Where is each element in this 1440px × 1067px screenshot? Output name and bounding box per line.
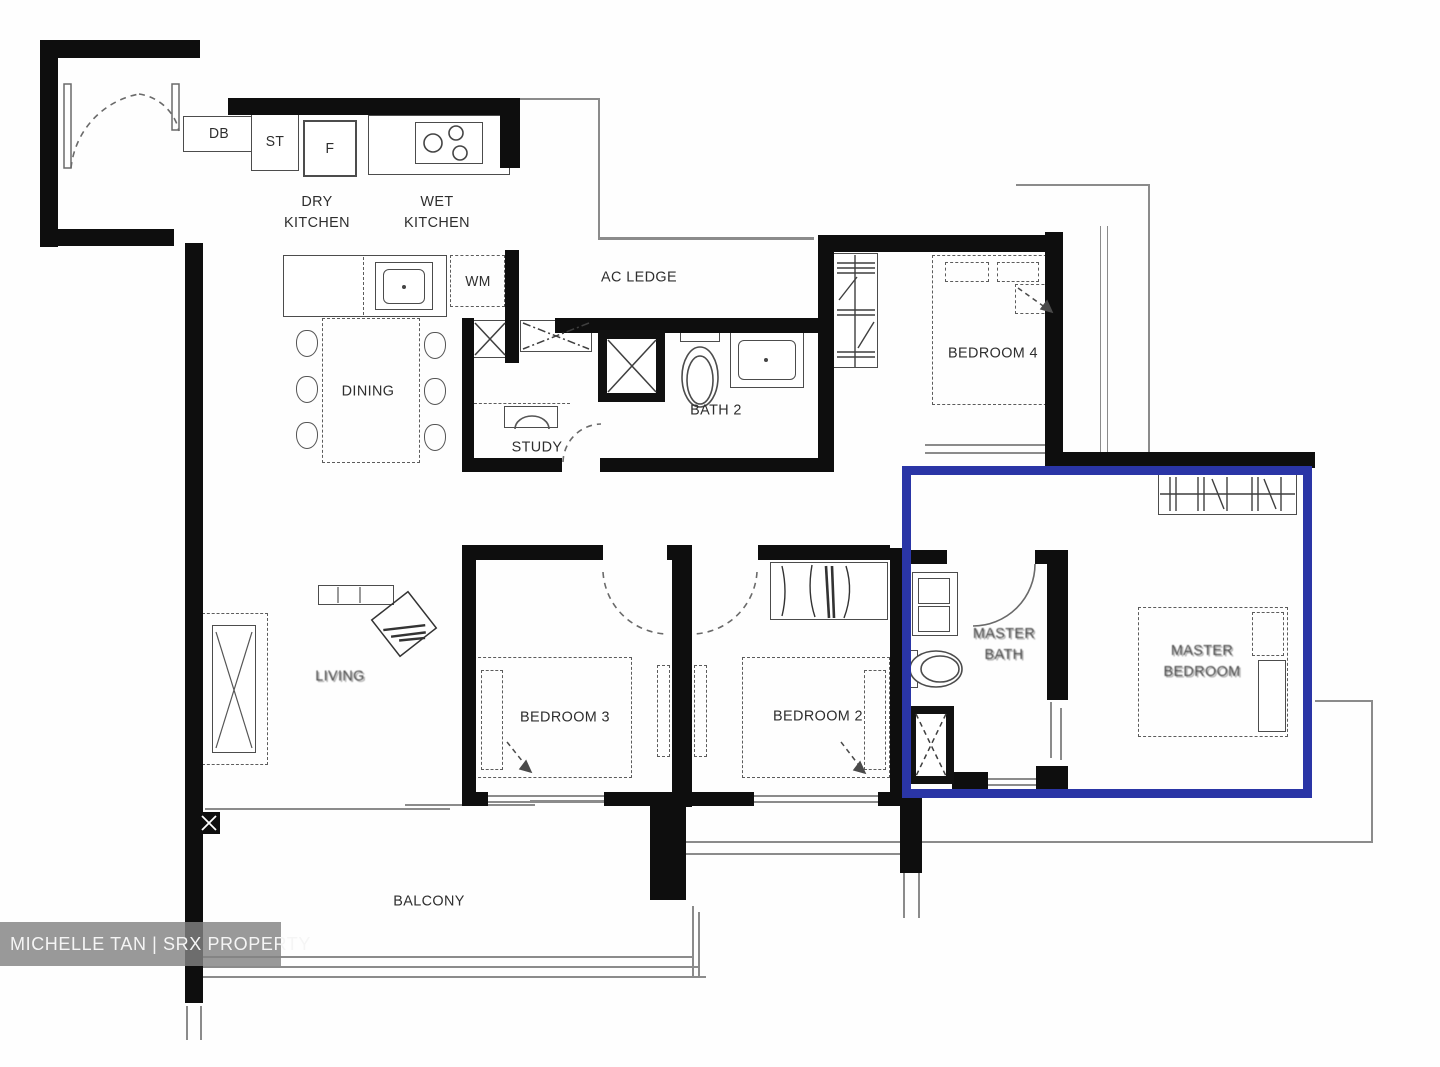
room-label-bath2: BATH 2 (690, 400, 742, 421)
label-db: DB (209, 124, 229, 144)
toilet-icon (682, 347, 718, 407)
ledge-line (598, 98, 600, 239)
wall (40, 229, 174, 246)
label-washing-machine: WM (465, 272, 491, 292)
room-label-balcony: BALCONY (393, 891, 465, 912)
wall (555, 318, 818, 333)
room-label-wet-kitchen: WET KITCHEN (404, 191, 470, 233)
wall (462, 458, 562, 472)
wall (600, 458, 830, 472)
room-label-ac-ledge: AC LEDGE (601, 267, 677, 288)
bath2-basin (738, 340, 796, 380)
dining-chair (424, 424, 446, 451)
riser-box (472, 320, 508, 358)
wall (672, 545, 692, 807)
room-label-bedroom4: BEDROOM 4 (948, 343, 1038, 364)
ledge-line (1016, 184, 1150, 186)
room-label-study: STUDY (512, 437, 563, 458)
label-fridge: F (326, 139, 335, 159)
ledge-line (1371, 701, 1373, 843)
label-st: ST (266, 132, 285, 152)
ledge-line (1315, 700, 1373, 702)
entrance-door (64, 84, 179, 168)
balcony-railing (698, 912, 700, 978)
study-partition (474, 403, 570, 404)
floor-plan: DB ST F WM DRY KITCHEN WET KITCHEN AC LE… (0, 0, 1440, 1067)
room-label-bedroom3: BEDROOM 3 (520, 707, 610, 728)
dining-chair (296, 376, 318, 403)
door-frame-line (186, 1006, 188, 1040)
balcony-railing (692, 906, 694, 978)
dining-chair (296, 422, 318, 449)
door-frame-line (200, 1006, 202, 1040)
pillow (945, 262, 989, 282)
bedside-table (694, 665, 707, 757)
door-frame-line (918, 873, 920, 918)
wall (818, 235, 1063, 252)
wall (462, 318, 474, 470)
ledge-line (520, 98, 600, 100)
bedside-table (657, 665, 670, 757)
pillow (864, 670, 886, 770)
window (754, 801, 878, 803)
wall (604, 792, 694, 806)
wall (228, 98, 520, 115)
ledge-line (1100, 226, 1108, 462)
window (754, 795, 878, 797)
balcony-railing (202, 966, 700, 968)
wall (505, 250, 519, 363)
wall (650, 800, 686, 900)
tv-console-inner (212, 625, 256, 753)
sofa (318, 585, 394, 605)
sliding-door (205, 808, 450, 810)
wall (462, 545, 603, 560)
ledge-line (1148, 184, 1150, 462)
wall (758, 545, 890, 560)
column-marker (198, 812, 220, 834)
window (925, 444, 1055, 446)
ledge-line (684, 841, 1373, 843)
kitchen-sink-basin (383, 269, 425, 304)
window (488, 801, 604, 803)
window (925, 452, 1055, 454)
master-suite-highlight (902, 466, 1312, 798)
wall (462, 545, 476, 805)
balcony-railing (202, 976, 706, 978)
pillow (997, 262, 1039, 282)
counter-divider (363, 257, 364, 315)
dining-chair (424, 378, 446, 405)
window (488, 795, 604, 797)
hob (415, 122, 483, 164)
watermark: MICHELLE TAN | SRX PROPERTY (0, 922, 281, 966)
pillow (481, 670, 503, 770)
room-label-dining: DINING (342, 381, 395, 402)
wall (40, 40, 200, 58)
wall (40, 40, 58, 247)
wall (462, 792, 488, 806)
room-label-dry-kitchen: DRY KITCHEN (284, 191, 350, 233)
dining-chair (296, 330, 318, 357)
door-frame-line (903, 873, 905, 918)
wardrobe (833, 253, 878, 368)
wall (900, 793, 922, 873)
wall (692, 792, 754, 806)
wall (878, 792, 902, 806)
ledge-line (684, 853, 904, 855)
dining-chair (424, 332, 446, 359)
wall (500, 98, 520, 168)
room-label-living: LIVING (315, 666, 365, 687)
room-label-bedroom2: BEDROOM 2 (773, 706, 863, 727)
study-desk (504, 406, 558, 428)
wall (185, 243, 203, 1003)
ac-shaft (598, 330, 665, 402)
wardrobe (770, 562, 888, 620)
ledge-line (598, 237, 814, 240)
wall (1045, 232, 1063, 470)
wall (818, 235, 834, 472)
